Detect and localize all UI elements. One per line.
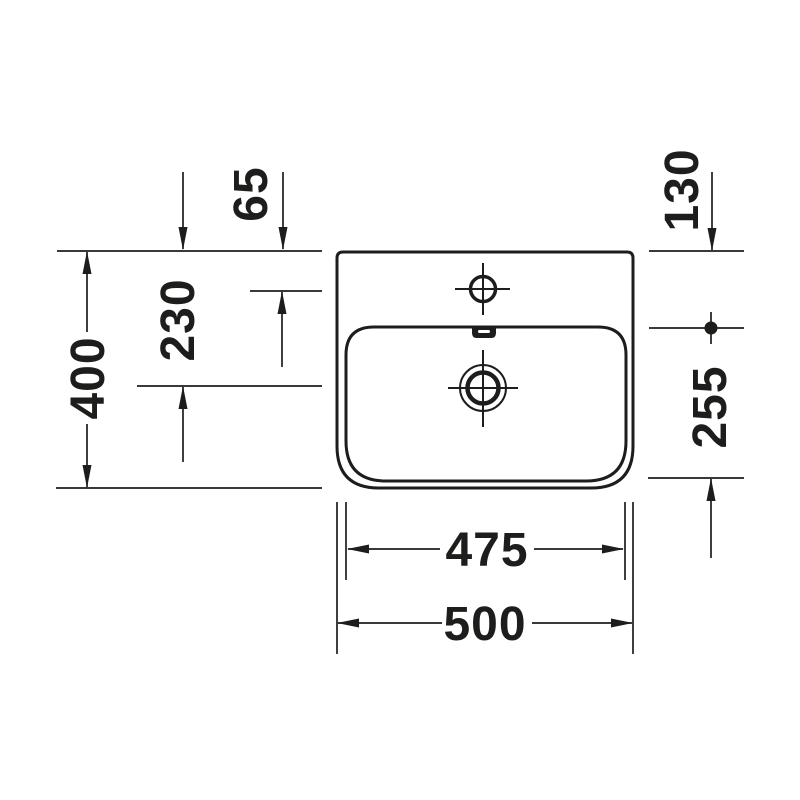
reference-dot <box>705 322 718 335</box>
dim-label-basin-width: 475 <box>445 524 528 577</box>
arrow-right-icon <box>602 545 624 554</box>
dim-label-overall-width: 500 <box>443 598 526 651</box>
arrow-up-icon <box>179 386 188 409</box>
dimension-drain-offset: 230 <box>152 172 205 462</box>
sink-body <box>337 252 633 488</box>
sink-outer-outline <box>337 252 633 488</box>
dimension-basin-depth: 255 <box>684 365 737 558</box>
tap-hole <box>455 263 510 315</box>
arrow-down-icon <box>179 227 188 250</box>
arrow-up-icon <box>278 291 287 314</box>
arrow-left-icon <box>347 545 369 554</box>
dimension-tap-offset: 65 <box>225 166 288 367</box>
dim-label-tap-offset: 65 <box>225 166 278 221</box>
arrow-right-icon <box>611 619 633 628</box>
dimension-overall-depth: 400 <box>62 251 115 488</box>
drain-hole <box>448 350 518 427</box>
washbasin-dimension-drawing: 400 230 65 130 255 <box>0 0 800 800</box>
overflow-slot-slit <box>478 330 490 333</box>
arrow-up-icon <box>707 478 716 501</box>
arrow-down-icon <box>279 227 288 250</box>
dimension-overall-width: 500 <box>337 598 633 651</box>
dim-label-rim-to-basin: 130 <box>656 148 709 231</box>
arrow-up-icon <box>83 251 92 274</box>
arrow-left-icon <box>337 619 359 628</box>
dimension-basin-width: 475 <box>347 524 624 577</box>
dim-label-basin-depth: 255 <box>684 365 737 448</box>
arrow-down-icon <box>83 465 92 488</box>
dim-label-overall-depth: 400 <box>62 336 115 419</box>
overflow-slot <box>472 327 496 338</box>
dim-label-drain-offset: 230 <box>152 278 205 361</box>
dimension-rim-to-basin: 130 <box>656 148 717 251</box>
drawing-page: 400 230 65 130 255 <box>0 0 800 800</box>
